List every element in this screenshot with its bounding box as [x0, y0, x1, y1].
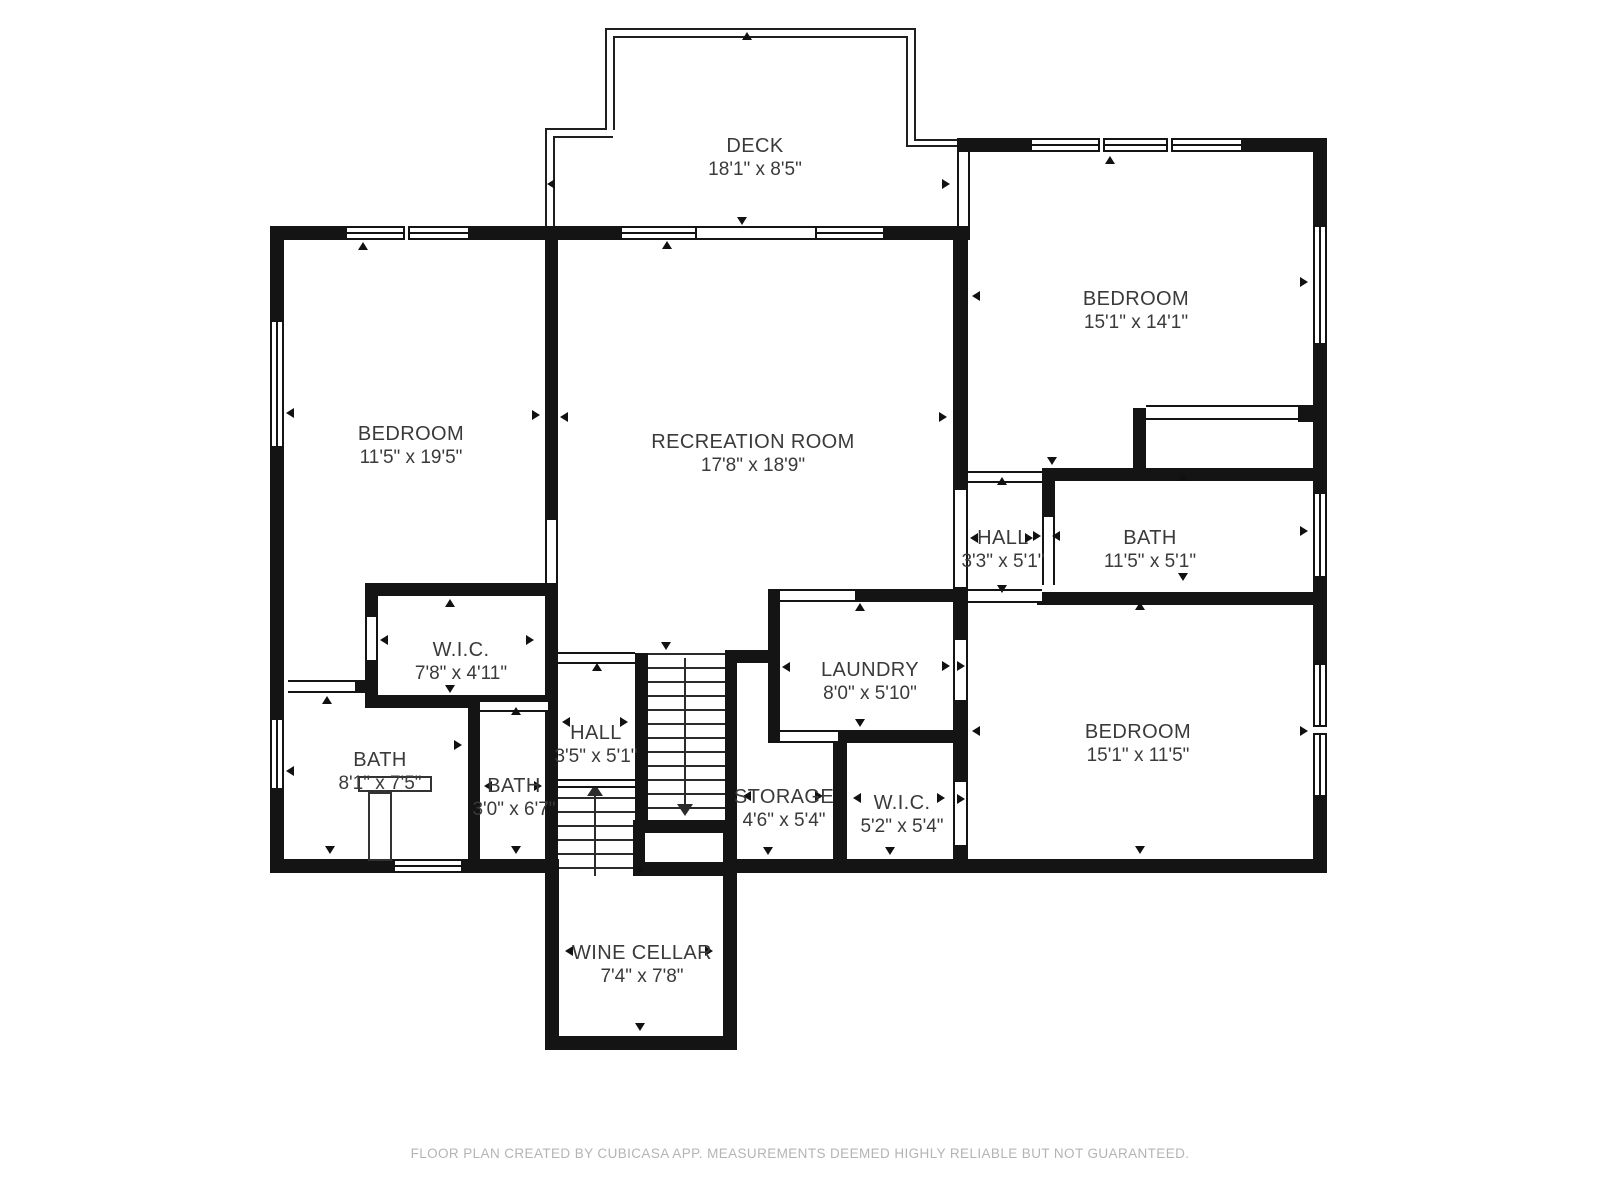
room-label-bedroom-left: BEDROOM 11'5" x 19'5"	[358, 422, 464, 470]
room-label-wic-left: W.I.C. 7'8" x 4'11"	[415, 638, 507, 686]
dimension-arrow-icon	[547, 179, 555, 189]
dimension-arrow-icon	[782, 662, 790, 672]
dimension-arrow-icon	[942, 179, 950, 189]
wall	[365, 583, 555, 596]
wall	[838, 730, 963, 743]
room-name: HALL	[554, 721, 637, 745]
dimension-arrow-icon	[942, 661, 950, 671]
floor-plan: DECK 18'1" x 8'5" BEDROOM 11'5" x 19'5" …	[0, 0, 1600, 1200]
room-name: STORAGE	[734, 785, 834, 809]
dimension-arrow-icon	[1135, 846, 1145, 854]
dimension-arrow-icon	[763, 847, 773, 855]
bath-fixture	[368, 792, 392, 861]
deck-edge-line	[916, 139, 957, 141]
dimension-arrow-icon	[1178, 573, 1188, 581]
window	[1313, 663, 1327, 727]
window	[270, 320, 284, 448]
door-opening	[1146, 405, 1298, 420]
deck-edge-line	[545, 128, 607, 130]
room-name: BATH	[338, 748, 421, 772]
deck-edge-line	[553, 136, 613, 138]
wall	[1313, 578, 1327, 663]
dimension-arrow-icon	[286, 766, 294, 776]
deck-edge-line	[906, 36, 908, 147]
disclaimer-text: FLOOR PLAN CREATED BY CUBICASA APP. MEAS…	[0, 1146, 1600, 1161]
dimension-arrow-icon	[957, 794, 965, 804]
wall	[270, 448, 284, 718]
dimension-arrow-icon	[511, 846, 521, 854]
room-name: RECREATION ROOM	[651, 430, 854, 454]
door-opening	[957, 152, 970, 226]
wall	[768, 730, 780, 743]
dimension-arrow-icon	[1105, 156, 1115, 164]
wall	[635, 820, 737, 833]
wall	[953, 700, 968, 782]
dimension-arrow-icon	[742, 32, 752, 40]
dimension-arrow-icon	[454, 740, 462, 750]
window	[1030, 138, 1100, 152]
dimension-arrow-icon	[325, 846, 335, 854]
wall	[953, 587, 968, 640]
door-opening	[780, 730, 838, 743]
wall	[957, 138, 1030, 152]
wall	[1037, 592, 1327, 605]
door-opening	[365, 617, 378, 660]
wall	[270, 226, 284, 320]
dimension-arrow-icon	[997, 477, 1007, 485]
dimension-arrow-icon	[560, 412, 568, 422]
staircase	[558, 783, 635, 876]
wall	[953, 226, 968, 490]
wall	[463, 859, 545, 873]
dimension-arrow-icon	[662, 241, 672, 249]
dimension-arrow-icon	[511, 707, 521, 715]
room-label-bath-small: BATH 3'0" x 6'7"	[472, 774, 555, 822]
dimension-arrow-icon	[358, 242, 368, 250]
wall	[723, 820, 737, 1050]
dimension-arrow-icon	[972, 291, 980, 301]
wall	[1313, 138, 1327, 225]
door-opening	[288, 680, 355, 693]
room-dims: 17'8" x 18'9"	[651, 454, 854, 478]
door-opening	[558, 779, 635, 788]
window	[1103, 138, 1168, 152]
dimension-arrow-icon	[322, 696, 332, 704]
deck-edge-line	[605, 28, 916, 30]
window	[620, 226, 697, 240]
dimension-arrow-icon	[526, 635, 534, 645]
wall	[953, 845, 968, 859]
dimension-arrow-icon	[1047, 457, 1057, 465]
deck-edge-line	[914, 28, 916, 141]
window	[408, 226, 470, 240]
window	[345, 226, 405, 240]
wall	[1042, 468, 1055, 517]
deck-edge-line	[545, 128, 547, 226]
room-name: BATH	[472, 774, 555, 798]
room-name: BATH	[1104, 526, 1196, 550]
door-opening	[953, 782, 968, 845]
dimension-arrow-icon	[1300, 526, 1308, 536]
dimension-arrow-icon	[1052, 531, 1060, 541]
deck-edge-line	[613, 36, 908, 38]
stair-direction-arrow-icon	[677, 804, 693, 816]
room-label-wine-cellar: WINE CELLAR 7'4" x 7'8"	[572, 941, 712, 989]
room-dims: 3'3" x 5'1"	[961, 550, 1044, 574]
window	[1313, 225, 1327, 345]
wall	[270, 226, 345, 240]
room-dims: 7'4" x 7'8"	[572, 965, 712, 989]
deck-edge-line	[613, 36, 615, 130]
room-dims: 11'5" x 19'5"	[358, 446, 464, 470]
room-name: BEDROOM	[358, 422, 464, 446]
room-label-laundry: LAUNDRY 8'0" x 5'10"	[821, 658, 919, 706]
window	[1313, 733, 1327, 797]
room-name: BEDROOM	[1085, 720, 1191, 744]
room-dims: 15'1" x 14'1"	[1083, 311, 1189, 335]
room-label-hall-bottom: HALL 3'5" x 5'1"	[554, 721, 637, 769]
dimension-arrow-icon	[532, 410, 540, 420]
door-opening	[697, 226, 815, 240]
dimension-arrow-icon	[445, 599, 455, 607]
room-dims: 18'1" x 8'5"	[708, 158, 802, 182]
deck-edge-line	[605, 28, 607, 130]
room-dims: 3'5" x 5'1"	[554, 745, 637, 769]
dimension-arrow-icon	[1178, 473, 1188, 481]
dimension-arrow-icon	[1300, 726, 1308, 736]
room-dims: 11'5" x 5'1"	[1104, 550, 1196, 574]
room-dims: 8'0" x 5'10"	[821, 682, 919, 706]
room-label-hall-right: HALL 3'3" x 5'1"	[961, 526, 1044, 574]
staircase	[648, 653, 725, 820]
room-dims: 8'1" x 7'5"	[338, 772, 421, 796]
wall	[1298, 405, 1313, 422]
dimension-arrow-icon	[997, 585, 1007, 593]
dimension-arrow-icon	[855, 603, 865, 611]
wall	[545, 240, 558, 520]
dimension-arrow-icon	[635, 1023, 645, 1031]
room-name: HALL	[961, 526, 1044, 550]
wall	[355, 680, 370, 693]
room-name: W.I.C.	[415, 638, 507, 662]
wall	[737, 859, 1327, 873]
door-opening	[780, 589, 855, 602]
window	[1171, 138, 1243, 152]
dimension-arrow-icon	[972, 726, 980, 736]
dimension-arrow-icon	[380, 635, 388, 645]
wall	[545, 859, 559, 1050]
dimension-arrow-icon	[592, 663, 602, 671]
stair-direction-line	[594, 793, 596, 876]
dimension-arrow-icon	[855, 719, 865, 727]
room-dims: 4'6" x 5'4"	[734, 809, 834, 833]
door-opening	[545, 520, 558, 583]
dimension-arrow-icon	[1135, 602, 1145, 610]
dimension-arrow-icon	[1300, 277, 1308, 287]
wall	[270, 859, 393, 873]
dimension-arrow-icon	[737, 217, 747, 225]
window	[393, 859, 463, 873]
room-label-bedroom-top-right: BEDROOM 15'1" x 14'1"	[1083, 287, 1189, 335]
room-label-recreation-room: RECREATION ROOM 17'8" x 18'9"	[651, 430, 854, 478]
room-dims: 15'1" x 11'5"	[1085, 744, 1191, 768]
wall	[365, 583, 378, 617]
stair-direction-line	[684, 658, 686, 805]
room-label-wic-small: W.I.C. 5'2" x 5'4"	[860, 791, 943, 839]
dimension-arrow-icon	[885, 847, 895, 855]
room-name: W.I.C.	[860, 791, 943, 815]
dimension-arrow-icon	[635, 864, 645, 872]
window	[270, 718, 284, 790]
dimension-arrow-icon	[939, 412, 947, 422]
wall	[470, 226, 620, 240]
room-name: LAUNDRY	[821, 658, 919, 682]
room-label-bath-right: BATH 11'5" x 5'1"	[1104, 526, 1196, 574]
room-name: BEDROOM	[1083, 287, 1189, 311]
dimension-arrow-icon	[286, 408, 294, 418]
room-dims: 5'2" x 5'4"	[860, 815, 943, 839]
window	[815, 226, 885, 240]
wall	[545, 1036, 737, 1050]
deck-edge-line	[908, 145, 957, 147]
dimension-arrow-icon	[661, 642, 671, 650]
wall	[855, 589, 963, 602]
wall	[833, 743, 847, 859]
room-label-storage: STORAGE 4'6" x 5'4"	[734, 785, 834, 833]
room-dims: 3'0" x 6'7"	[472, 798, 555, 822]
wall	[768, 589, 780, 743]
room-label-deck: DECK 18'1" x 8'5"	[708, 134, 802, 182]
wall	[633, 862, 737, 876]
room-name: DECK	[708, 134, 802, 158]
wall	[1133, 408, 1146, 468]
room-label-bedroom-bottom-right: BEDROOM 15'1" x 11'5"	[1085, 720, 1191, 768]
dimension-arrow-icon	[445, 685, 455, 693]
window	[1313, 492, 1327, 578]
dimension-arrow-icon	[957, 661, 965, 671]
room-name: WINE CELLAR	[572, 941, 712, 965]
room-label-bath-left: BATH 8'1" x 7'5"	[338, 748, 421, 796]
room-dims: 7'8" x 4'11"	[415, 662, 507, 686]
